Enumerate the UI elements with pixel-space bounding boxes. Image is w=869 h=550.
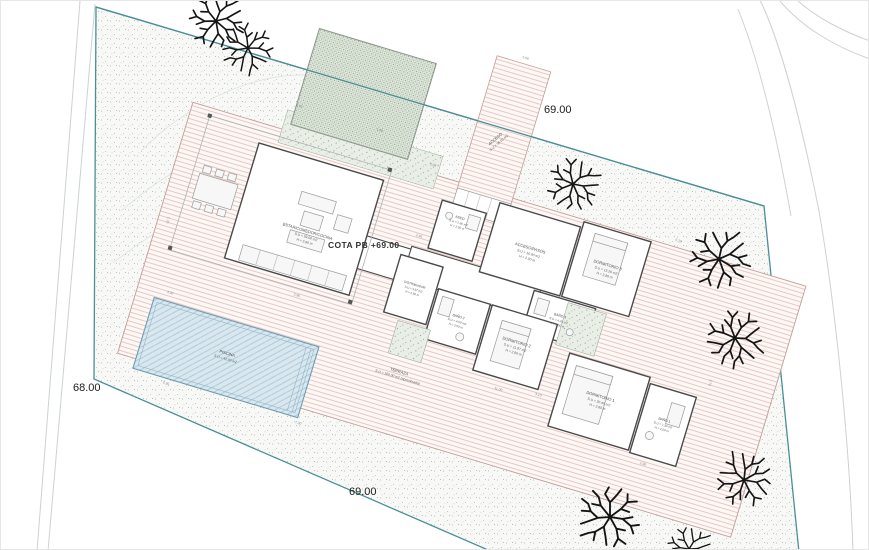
boundary-top-label: 69.00 — [544, 104, 572, 116]
boundary-left-label: 68.00 — [73, 382, 101, 394]
boundary-bottom-label: 69.00 — [349, 486, 377, 498]
cota-pb-label: COTA PB +69.00 — [328, 240, 400, 250]
svg-text:5.06: 5.06 — [522, 55, 530, 61]
site-plan-drawing: ESTAR/COMEDOR/COCINA S.U = 59.00 m2 H = … — [1, 1, 869, 550]
site-plan-canvas: ESTAR/COMEDOR/COCINA S.U = 59.00 m2 H = … — [0, 0, 869, 550]
